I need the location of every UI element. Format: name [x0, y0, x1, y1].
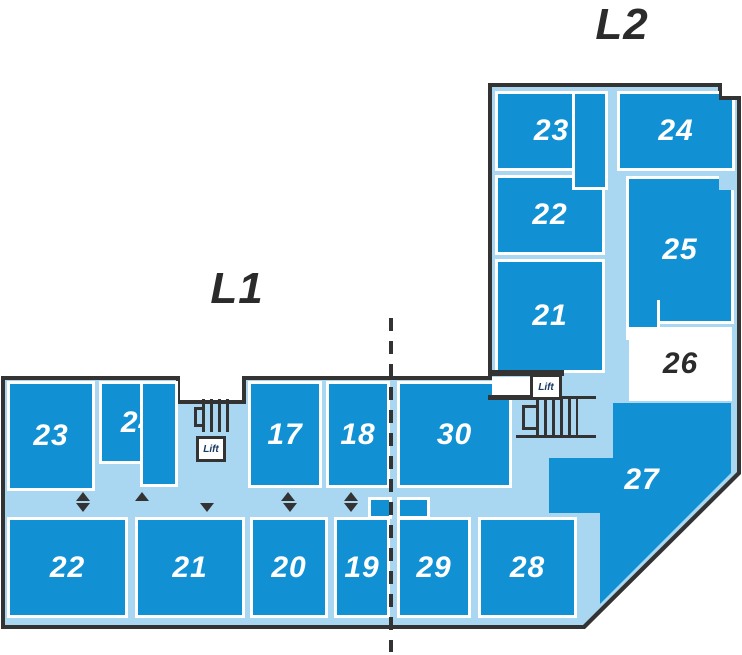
room-l1-22[interactable]: 22	[7, 517, 128, 618]
floor-plan-map: 22 23 24 21 25 26 23 24 17 18 30 22 21 2…	[0, 0, 742, 655]
up-arrow-icon	[76, 492, 90, 501]
level-label-l2: L2	[567, 0, 677, 50]
stairs-icon	[516, 396, 596, 438]
room-l2-24[interactable]: 24	[617, 91, 735, 171]
room-l1-17[interactable]: 17	[248, 381, 322, 488]
entrance-recess-l2	[492, 377, 532, 395]
room-number-label: 18	[340, 418, 375, 452]
room-number-label: 19	[344, 551, 379, 585]
lift-l1: Lift	[196, 436, 226, 462]
room-number-label: 20	[271, 551, 306, 585]
room-l1-18[interactable]: 18	[326, 381, 390, 488]
room-number-label: 25	[662, 233, 697, 267]
room-number-label: 30	[437, 418, 472, 452]
up-arrow-icon	[135, 492, 149, 501]
lift-label: Lift	[538, 382, 554, 393]
room-number-label: 28	[510, 551, 545, 585]
lift-l2: Lift	[530, 374, 562, 400]
down-arrow-icon	[344, 503, 358, 512]
room-l1-24-extension[interactable]	[140, 381, 178, 487]
room-l1-29-extension[interactable]	[397, 497, 430, 519]
lift-label: Lift	[203, 444, 219, 455]
level-divider-dashed-line	[389, 318, 393, 652]
room-l2-26[interactable]: 26	[629, 327, 732, 401]
room-l1-20[interactable]: 20	[250, 517, 328, 618]
stairs-icon	[194, 399, 230, 435]
level-label-l1: L1	[182, 264, 292, 314]
room-number-label: 26	[663, 347, 698, 381]
room-number-label: 23	[33, 419, 68, 453]
room-number-label: 21	[532, 299, 567, 333]
room-number-label: 22	[532, 198, 567, 232]
room-number-label: 24	[658, 114, 693, 148]
down-arrow-icon	[283, 503, 297, 512]
room-l1-29[interactable]: 29	[397, 517, 471, 618]
room-number-label: 21	[172, 551, 207, 585]
room-number-label: 22	[50, 551, 85, 585]
room-number-label: 23	[534, 114, 569, 148]
room-l2-21[interactable]: 21	[495, 259, 605, 373]
room-l1-23[interactable]: 23	[7, 381, 95, 491]
up-arrow-icon	[344, 492, 358, 501]
room-l1-21[interactable]: 21	[135, 517, 245, 618]
down-arrow-icon	[200, 503, 214, 512]
up-arrow-icon	[281, 492, 295, 501]
room-l1-28[interactable]: 28	[478, 517, 577, 618]
room-number-label: 17	[267, 418, 302, 452]
room-number-label: 29	[416, 551, 451, 585]
down-arrow-icon	[76, 503, 90, 512]
room-number-label: 27	[607, 463, 677, 497]
room-l1-19[interactable]: 19	[334, 517, 390, 618]
room-l2-23-extension[interactable]	[572, 91, 608, 190]
